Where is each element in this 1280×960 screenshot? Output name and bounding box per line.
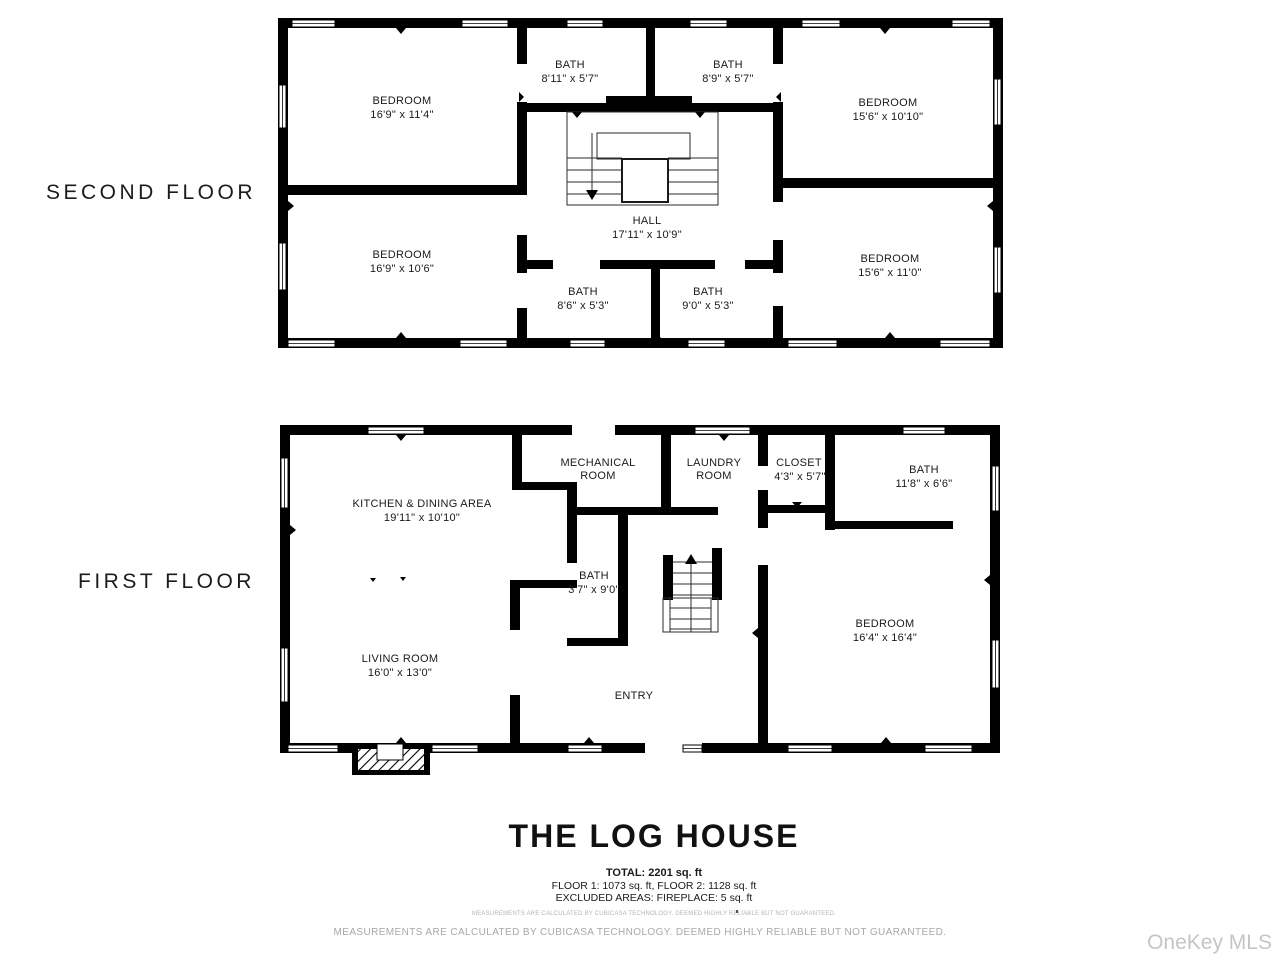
disclaimer-text: MEASUREMENTS ARE CALCULATED BY CUBICASA … bbox=[334, 927, 947, 938]
disclaimer-small: MEASUREMENTS ARE CALCULATED BY CUBICASA … bbox=[472, 911, 836, 917]
room-label-bath-tl: BATH bbox=[555, 59, 585, 71]
second-floor-staircase bbox=[567, 112, 718, 205]
room-dims-kitchen: 19'11" x 10'10" bbox=[384, 512, 460, 524]
room-dims-closet: 4'3" x 5'7" bbox=[774, 471, 825, 483]
room-dims-bedroom-br: 15'6" x 11'0" bbox=[858, 267, 921, 279]
stair-down-arrow-icon bbox=[586, 190, 598, 200]
stair-landing bbox=[622, 159, 668, 202]
first-floor-walls bbox=[280, 425, 1000, 753]
room-label-bath-br: BATH bbox=[693, 286, 723, 298]
second-floor-walls bbox=[278, 18, 1003, 348]
room-dims-bath-bl: 8'6" x 5'3" bbox=[557, 300, 608, 312]
firebox bbox=[377, 744, 403, 760]
first-floor-plan: KITCHEN & DINING AREA 19'11" x 10'10" ME… bbox=[260, 415, 1020, 785]
chimney-block bbox=[606, 96, 692, 112]
second-floor-label: SECOND FLOOR bbox=[46, 181, 256, 205]
room-label-laundry: LAUNDRY bbox=[687, 457, 742, 469]
room-dims-bedroom-tl: 16'9" x 11'4" bbox=[370, 109, 433, 121]
room-label-bedroom: BEDROOM bbox=[856, 618, 915, 630]
footer-block: THE LOG HOUSE TOTAL: 2201 sq. ft FLOOR 1… bbox=[472, 818, 836, 917]
room-dims-bedroom-bl: 16'9" x 10'6" bbox=[370, 263, 434, 275]
room-label-bath-bl: BATH bbox=[568, 286, 598, 298]
stair-up-arrow-icon bbox=[685, 554, 697, 564]
room-label-bedroom-bl: BEDROOM bbox=[373, 249, 432, 261]
room-label-bedroom-tl: BEDROOM bbox=[373, 95, 432, 107]
room-label-bath-main: BATH bbox=[909, 464, 939, 476]
room-label-mechanical-2: ROOM bbox=[580, 470, 615, 482]
floor-areas-line: FLOOR 1: 1073 sq. ft, FLOOR 2: 1128 sq. … bbox=[472, 880, 836, 892]
onekey-mls-watermark: OneKey MLS bbox=[1147, 931, 1272, 955]
stray-mark bbox=[736, 910, 738, 913]
plan-title: THE LOG HOUSE bbox=[472, 818, 836, 855]
room-dims-living: 16'0" x 13'0" bbox=[368, 667, 432, 679]
room-dims-hall: 17'11" x 10'9" bbox=[612, 229, 682, 241]
room-label-mechanical: MECHANICAL bbox=[560, 457, 635, 469]
room-dims-bedroom-tr: 15'6" x 10'10" bbox=[853, 111, 924, 123]
room-label-laundry-2: ROOM bbox=[696, 470, 731, 482]
room-label-closet: CLOSET bbox=[776, 457, 822, 469]
room-label-bedroom-br: BEDROOM bbox=[861, 253, 920, 265]
room-label-kitchen: KITCHEN & DINING AREA bbox=[353, 498, 492, 510]
first-floor-label: FIRST FLOOR bbox=[78, 570, 255, 594]
room-dims-bath-main: 11'8" x 6'6" bbox=[896, 478, 953, 490]
total-area-line: TOTAL: 2201 sq. ft bbox=[472, 867, 836, 879]
second-floor-plan: BEDROOM 16'9" x 11'4" BATH 8'11" x 5'7" … bbox=[260, 5, 1020, 360]
room-label-bath-small: BATH bbox=[579, 570, 609, 582]
room-label-bath-tr: BATH bbox=[713, 59, 743, 71]
room-label-bedroom-tr: BEDROOM bbox=[859, 97, 918, 109]
room-dims-bedroom: 16'4" x 16'4" bbox=[853, 632, 917, 644]
first-floor-room-labels: KITCHEN & DINING AREA 19'11" x 10'10" ME… bbox=[353, 457, 953, 702]
floor-plan-page: { "colors": { "wall": "#000000", "text":… bbox=[0, 0, 1280, 960]
room-dims-bath-br: 9'0" x 5'3" bbox=[682, 300, 733, 312]
room-dims-bath-tr: 8'9" x 5'7" bbox=[702, 73, 753, 85]
room-label-living: LIVING ROOM bbox=[362, 653, 439, 665]
room-label-hall: HALL bbox=[633, 215, 662, 227]
room-dims-bath-tl: 8'11" x 5'7" bbox=[542, 73, 599, 85]
excluded-areas-line: EXCLUDED AREAS: FIREPLACE: 5 sq. ft bbox=[472, 892, 836, 904]
first-floor-windows bbox=[281, 427, 999, 752]
fireplace bbox=[352, 743, 430, 775]
room-dims-bath-small: 3'7" x 9'0" bbox=[568, 584, 619, 596]
room-label-entry: ENTRY bbox=[615, 690, 654, 702]
